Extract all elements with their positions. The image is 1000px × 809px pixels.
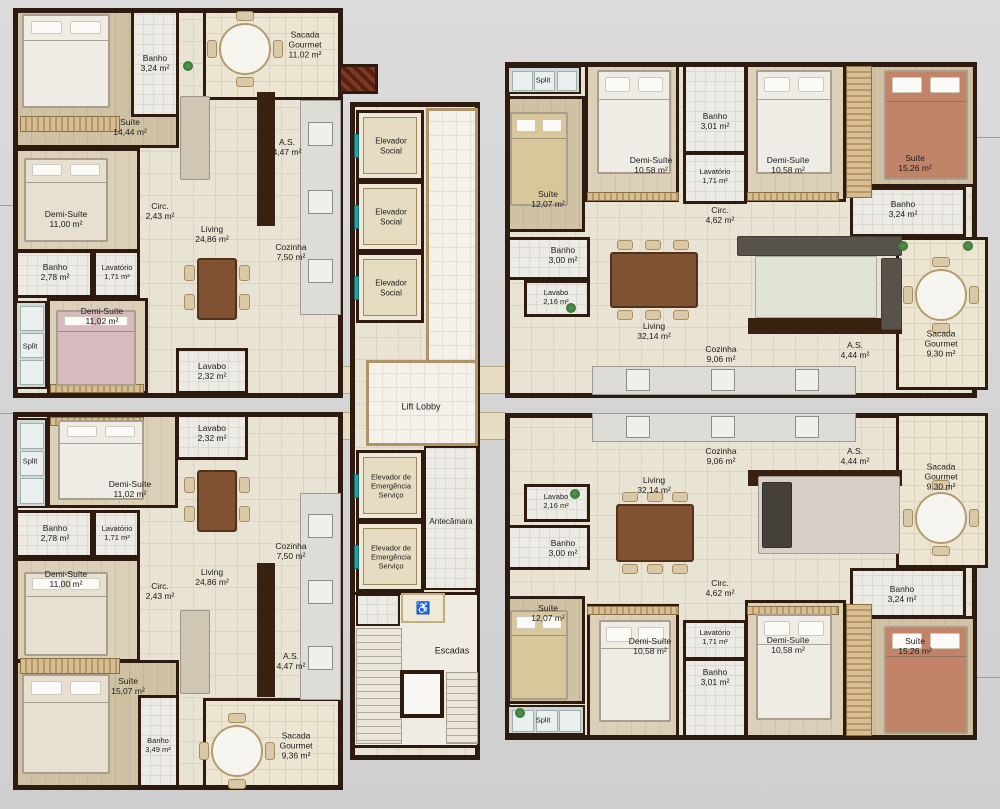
bed-pillow: [798, 621, 825, 636]
bed-pillow: [70, 21, 101, 35]
bed-pillow: [798, 77, 825, 92]
stair-treads: [446, 672, 478, 744]
survey-line: [0, 205, 14, 206]
closet: [846, 604, 872, 736]
chair: [265, 742, 275, 760]
bed-pillow: [930, 77, 960, 93]
bed-pillow: [100, 316, 128, 327]
plant: [515, 708, 525, 718]
chair: [932, 257, 950, 267]
room-lavabo: [176, 348, 248, 394]
plant: [963, 241, 973, 251]
chair: [673, 310, 689, 320]
bed-blanket-line: [599, 99, 669, 100]
closet: [747, 192, 839, 201]
balcony-round-table: [915, 492, 967, 544]
room-lavabo: [176, 414, 248, 460]
elevator-social: [356, 181, 424, 252]
chair: [617, 240, 633, 250]
elevator-door-icon: [354, 134, 359, 158]
chair: [236, 11, 254, 21]
closet: [587, 192, 679, 201]
bed: [56, 310, 136, 386]
appliance: [711, 369, 735, 391]
room-lavabo: [524, 280, 590, 317]
dining-table: [197, 470, 237, 532]
floor-plan: ♿Suíte 14,44 m²Banho 3,24 m²Sacada Gourm…: [0, 0, 1000, 809]
survey-line: [975, 137, 1000, 138]
appliance: [308, 190, 333, 214]
room-banho: [131, 10, 179, 117]
bed: [22, 674, 110, 774]
lounge-piece: [762, 482, 792, 548]
elevator-emergency: [356, 521, 424, 592]
media-wall: [257, 92, 275, 226]
chair: [239, 265, 250, 281]
bed: [510, 112, 568, 206]
survey-line: [973, 677, 1000, 678]
appliance: [795, 369, 819, 391]
bed-blanket-line: [24, 702, 108, 703]
sofa: [180, 610, 210, 694]
bed-pillow: [32, 578, 62, 590]
bed-pillow: [516, 119, 536, 133]
closet: [587, 606, 679, 615]
balcony-round-table: [211, 725, 263, 777]
chair: [199, 742, 209, 760]
chair: [969, 286, 979, 304]
chair: [672, 564, 688, 574]
chair: [236, 77, 254, 87]
bed-pillow: [32, 164, 62, 176]
entry-threshold: [479, 366, 506, 394]
media-wall: [257, 563, 275, 697]
bed-blanket-line: [886, 656, 966, 657]
bed-pillow: [64, 316, 92, 327]
bed: [24, 158, 108, 242]
entry-threshold: [479, 412, 506, 440]
bed-pillow: [516, 616, 536, 629]
chair: [184, 477, 195, 493]
chair: [645, 240, 661, 250]
bed-pillow: [542, 616, 562, 629]
bed-pillow: [31, 681, 62, 695]
bed: [756, 614, 832, 720]
bed: [884, 626, 968, 734]
bed-blanket-line: [26, 182, 106, 183]
chair: [672, 492, 688, 502]
closet: [20, 658, 120, 674]
room-banho: [15, 250, 93, 298]
bed-blanket-line: [60, 443, 142, 444]
bed-blanket-line: [758, 644, 830, 645]
bed-pillow: [892, 77, 922, 93]
bed-pillow: [638, 77, 664, 92]
appliance: [308, 514, 333, 538]
room-banho: [507, 525, 590, 570]
chair: [228, 779, 246, 789]
room-lavato-rio: [93, 250, 140, 298]
plant: [898, 241, 908, 251]
stair-treads: [356, 628, 402, 744]
split-unit: [15, 301, 47, 389]
room-sacada-gourmet: [896, 413, 988, 568]
sofa: [737, 236, 902, 256]
balcony-round-table: [219, 23, 271, 75]
dining-table: [616, 504, 694, 562]
lounge-piece: [755, 256, 877, 318]
survey-line: [0, 413, 14, 414]
dining-table: [610, 252, 698, 308]
plant: [566, 303, 576, 313]
sofa: [180, 96, 210, 180]
elevator-door-icon: [354, 474, 359, 498]
bed-blanket-line: [886, 101, 966, 102]
bed-pillow: [542, 119, 562, 133]
stair-void: [400, 670, 444, 718]
bed-pillow: [930, 633, 960, 649]
bed-pillow: [892, 633, 922, 649]
chair: [239, 294, 250, 310]
bed: [510, 610, 568, 700]
bed: [22, 14, 110, 108]
bed-blanket-line: [26, 596, 106, 597]
appliance: [626, 416, 650, 438]
bed-blanket-line: [58, 331, 134, 332]
chair: [932, 546, 950, 556]
closet: [846, 66, 872, 198]
appliance: [308, 646, 333, 670]
elevator-social: [356, 110, 424, 181]
bed: [58, 420, 144, 500]
bed-blanket-line: [601, 648, 669, 649]
appliance: [308, 580, 333, 604]
bed-pillow: [764, 77, 791, 92]
bed-blanket-line: [758, 99, 830, 100]
appliance: [711, 416, 735, 438]
chair: [207, 40, 217, 58]
bed-pillow: [764, 621, 791, 636]
room-lavabo: [524, 484, 590, 522]
bed-pillow: [605, 77, 631, 92]
plant: [183, 61, 193, 71]
chair: [645, 310, 661, 320]
elevator-door-icon: [354, 205, 359, 229]
elevator-emergency: [356, 450, 424, 521]
chair: [622, 492, 638, 502]
chair: [239, 477, 250, 493]
chair: [239, 506, 250, 522]
plant: [570, 489, 580, 499]
room-lavato-rio: [683, 152, 747, 204]
bed-blanket-line: [512, 635, 566, 636]
chair: [903, 286, 913, 304]
bed-pillow: [105, 426, 135, 437]
balcony-round-table: [915, 269, 967, 321]
bed: [597, 70, 671, 174]
room-lavato-rio: [683, 620, 747, 660]
chair: [647, 492, 663, 502]
chair: [673, 240, 689, 250]
room-banho: [15, 510, 93, 558]
split-unit: [15, 418, 47, 508]
elevator-door-icon: [354, 545, 359, 569]
appliance: [308, 259, 333, 283]
chair: [228, 713, 246, 723]
bed-pillow: [31, 21, 62, 35]
bed-pillow: [606, 627, 631, 642]
sofa: [881, 258, 902, 330]
chair: [184, 506, 195, 522]
chair: [647, 564, 663, 574]
room-banho: [683, 64, 747, 154]
bed: [884, 70, 968, 180]
room-lavato-rio: [93, 510, 140, 558]
lift-lobby: [366, 360, 478, 446]
chair: [184, 265, 195, 281]
bed: [756, 70, 832, 174]
chair: [273, 40, 283, 58]
wheelchair-icon: ♿: [401, 593, 445, 623]
stairs-room: [356, 594, 400, 626]
appliance: [795, 416, 819, 438]
bed-pillow: [70, 164, 100, 176]
media-wall: [748, 318, 902, 334]
bed: [599, 620, 671, 722]
chair: [617, 310, 633, 320]
chair: [903, 509, 913, 527]
split-unit: [507, 66, 581, 94]
room-banho: [507, 237, 590, 280]
chair: [184, 294, 195, 310]
antechamber: [424, 446, 478, 590]
bed-pillow: [67, 426, 97, 437]
chair: [932, 480, 950, 490]
bed-pillow: [638, 627, 663, 642]
closet: [20, 116, 120, 132]
chair: [622, 564, 638, 574]
elevator-door-icon: [354, 276, 359, 300]
bed-pillow: [70, 578, 100, 590]
dining-table: [197, 258, 237, 320]
room-banho: [138, 695, 179, 788]
bed-pillow: [70, 681, 101, 695]
elevator-social: [356, 252, 424, 323]
appliance: [626, 369, 650, 391]
appliance: [308, 122, 333, 146]
bed-blanket-line: [24, 40, 108, 41]
chair: [932, 323, 950, 333]
bed: [24, 572, 108, 656]
room-banho: [683, 658, 747, 738]
chair: [969, 509, 979, 527]
bed-blanket-line: [512, 138, 566, 139]
